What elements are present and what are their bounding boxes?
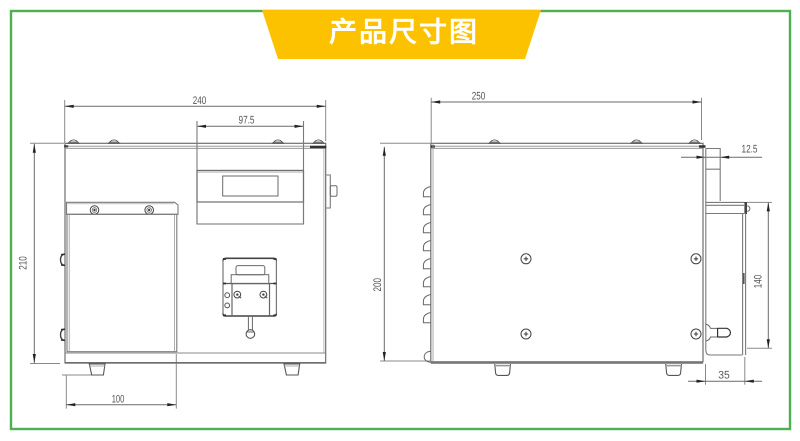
svg-text:250: 250 bbox=[472, 91, 486, 103]
svg-text:240: 240 bbox=[193, 95, 207, 107]
svg-text:200: 200 bbox=[372, 278, 384, 292]
svg-text:140: 140 bbox=[753, 275, 765, 289]
svg-text:100: 100 bbox=[112, 393, 125, 405]
svg-text:97.5: 97.5 bbox=[239, 114, 255, 126]
svg-text:12.5: 12.5 bbox=[742, 144, 758, 156]
svg-text:产品尺寸图: 产品尺寸图 bbox=[329, 17, 479, 48]
svg-text:35: 35 bbox=[718, 370, 730, 382]
svg-text:210: 210 bbox=[18, 256, 30, 270]
